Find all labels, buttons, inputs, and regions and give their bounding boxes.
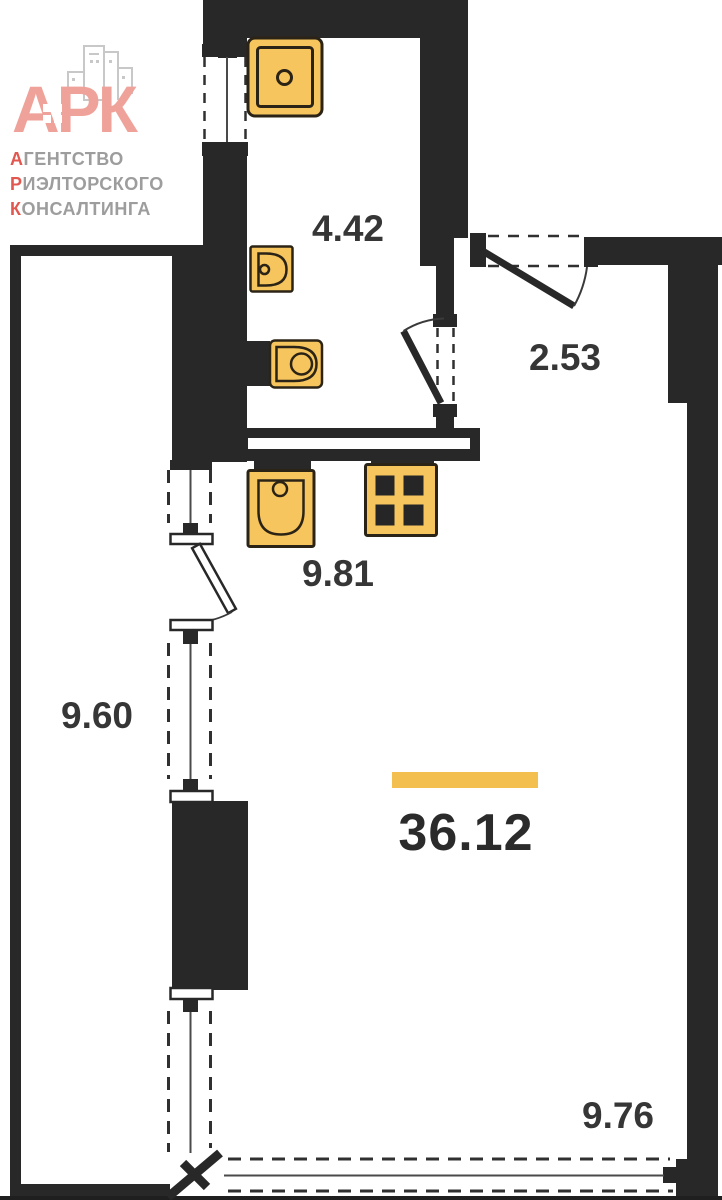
band-break-mark [168, 1153, 220, 1197]
logo-letters: АРК [12, 72, 139, 140]
logo-buildings-icon: АРК [6, 28, 196, 140]
agency-name-line: РИЭЛТОРСКОГО [10, 172, 196, 197]
area-label-balcony: 9.60 [61, 695, 133, 737]
agency-name: АГЕНТСТВО РИЭЛТОРСКОГО КОНСАЛТИНГА [6, 147, 196, 222]
stove-icon [366, 452, 437, 536]
area-label-terrace: 9.76 [582, 1095, 654, 1137]
agency-logo: АРК АГЕНТСТВО РИЭЛТОРСКОГО КОНСАЛТИНГА [6, 28, 196, 222]
area-label-living-total: 36.12 [398, 803, 533, 863]
area-label-kitchen: 9.81 [302, 553, 374, 595]
bathroom-door [404, 319, 454, 404]
entry-door [481, 236, 587, 306]
floor-plan: АРК АГЕНТСТВО РИЭЛТОРСКОГО КОНСАЛТИНГА 4… [0, 0, 722, 1200]
total-area-accent-bar [392, 772, 538, 788]
toilet-icon [247, 341, 322, 388]
shower-tray-icon [248, 38, 322, 116]
balcony-door [171, 523, 236, 644]
washbasin-icon [251, 247, 293, 292]
agency-name-line: АГЕНТСТВО [10, 147, 196, 172]
agency-name-line: КОНСАЛТИНГА [10, 197, 196, 222]
kitchen-sink-icon [248, 457, 314, 547]
terrace-window-band [224, 1159, 673, 1191]
bathroom-window [205, 57, 246, 142]
area-label-shower-room: 4.42 [312, 208, 384, 250]
area-label-hall: 2.53 [529, 337, 601, 379]
